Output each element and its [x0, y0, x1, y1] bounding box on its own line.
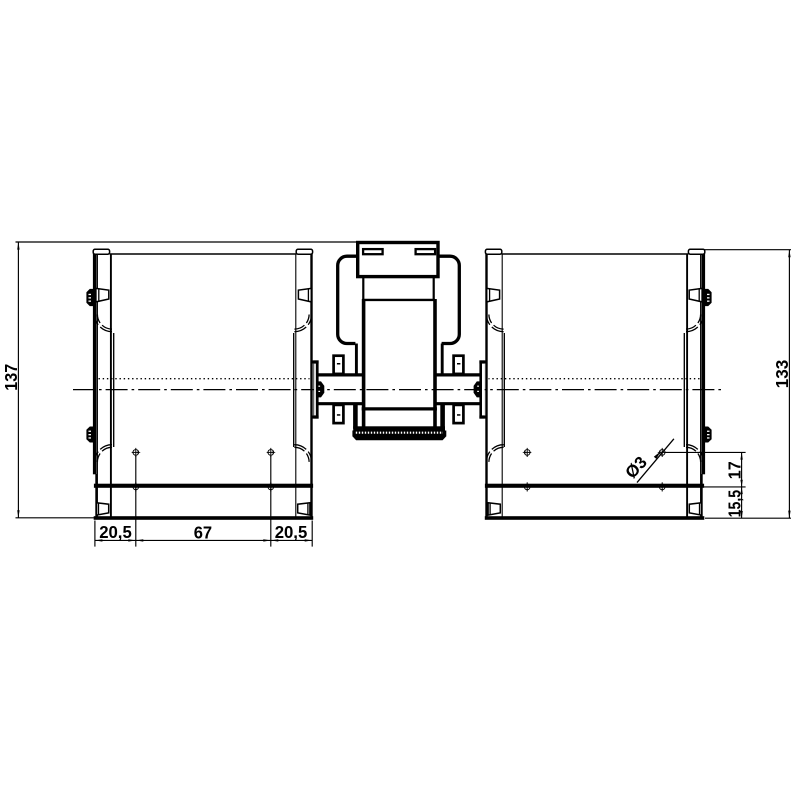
svg-text:137: 137 — [1, 364, 21, 391]
svg-text:20,5: 20,5 — [99, 522, 132, 542]
svg-text:133: 133 — [772, 359, 792, 388]
svg-text:67: 67 — [194, 522, 212, 542]
svg-text:15,5: 15,5 — [725, 490, 745, 518]
svg-text:20,5: 20,5 — [275, 522, 308, 542]
svg-text:17: 17 — [725, 461, 745, 479]
